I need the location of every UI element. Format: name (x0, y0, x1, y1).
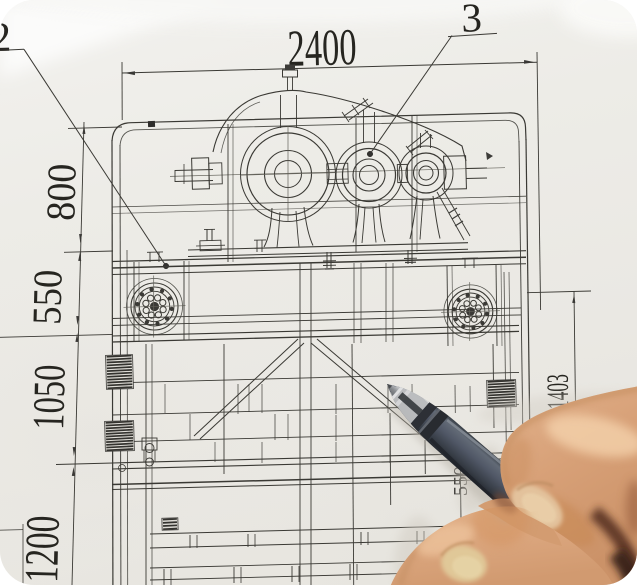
svg-text:2: 2 (0, 15, 12, 62)
svg-text:1050: 1050 (23, 364, 75, 430)
svg-text:550: 550 (23, 269, 70, 325)
svg-text:800: 800 (37, 163, 84, 221)
svg-text:2400: 2400 (287, 19, 357, 78)
